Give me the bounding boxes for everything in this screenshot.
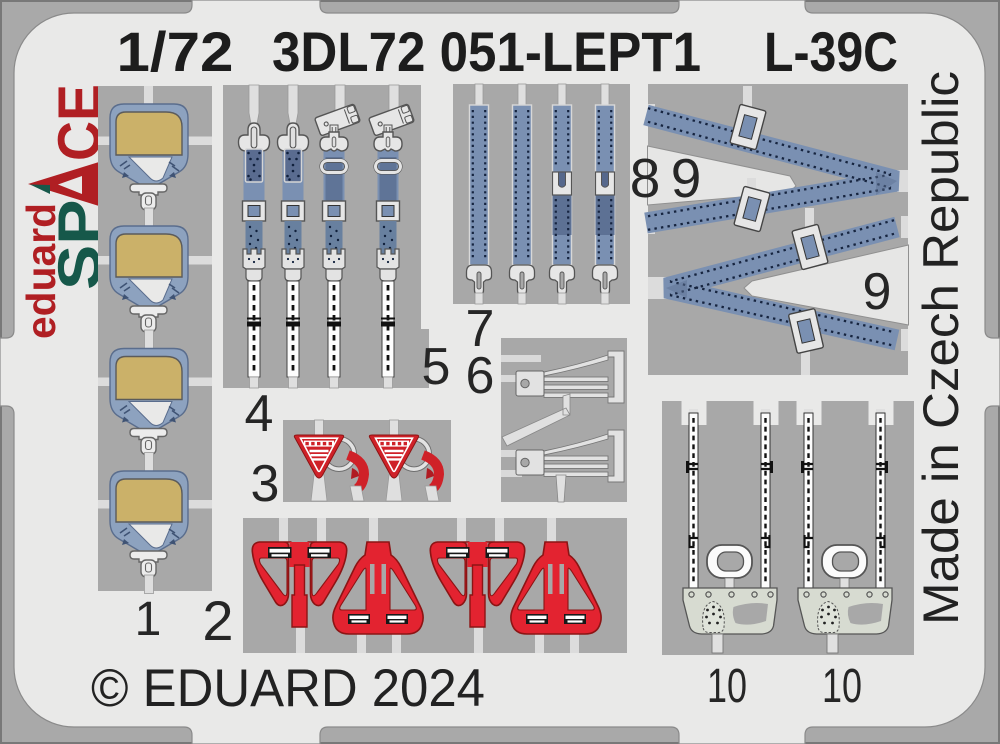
svg-text:L-39C: L-39C [764,20,898,83]
svg-text:Made in Czech Republic: Made in Czech Republic [913,71,969,625]
svg-text:8: 8 [630,147,661,209]
svg-text:4: 4 [245,385,274,443]
svg-text:1/72: 1/72 [117,20,234,83]
svg-text:10: 10 [822,660,862,713]
svg-text:© EDUARD 2024: © EDUARD 2024 [91,659,485,718]
svg-text:6: 6 [466,347,495,405]
svg-text:9: 9 [671,147,702,209]
svg-text:2: 2 [202,589,233,652]
svg-text:10: 10 [707,660,747,713]
svg-text:1: 1 [135,593,162,646]
svg-text:3: 3 [251,455,280,513]
svg-text:5: 5 [422,338,451,396]
svg-text:9: 9 [863,263,892,321]
svg-text:3DL72 051-LEPT1: 3DL72 051-LEPT1 [272,20,701,83]
